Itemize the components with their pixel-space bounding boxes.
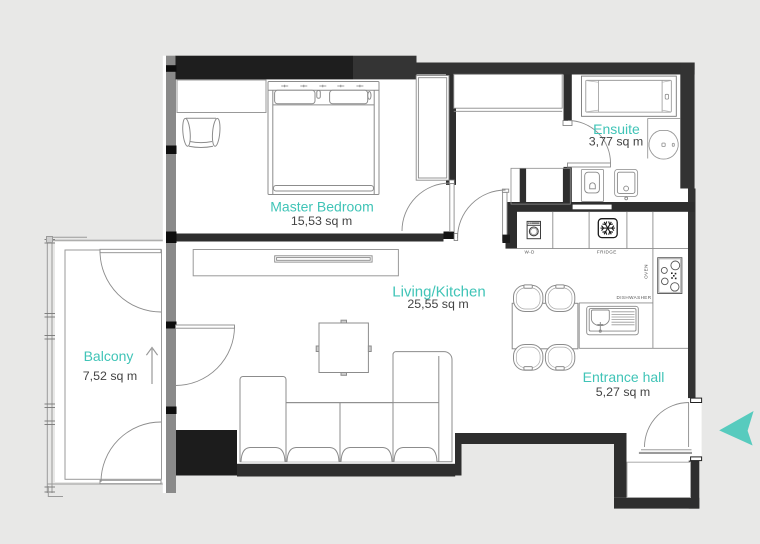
svg-text:3,77 sq m: 3,77 sq m (589, 135, 643, 149)
svg-text:5,27 sq m: 5,27 sq m (596, 385, 650, 399)
svg-text:7,52 sq m: 7,52 sq m (83, 369, 137, 383)
svg-text:Entrance hall: Entrance hall (583, 369, 665, 385)
svg-text:25,55 sq m: 25,55 sq m (407, 297, 468, 311)
svg-text:W-D: W-D (524, 250, 535, 255)
svg-text:Master Bedroom: Master Bedroom (270, 199, 373, 215)
svg-text:Balcony: Balcony (84, 348, 134, 364)
svg-text:DISHWASHER: DISHWASHER (617, 295, 652, 300)
svg-text:15,53 sq m: 15,53 sq m (291, 214, 352, 228)
svg-text:FRIDGE: FRIDGE (597, 249, 617, 254)
svg-text:OVEN: OVEN (644, 264, 649, 279)
